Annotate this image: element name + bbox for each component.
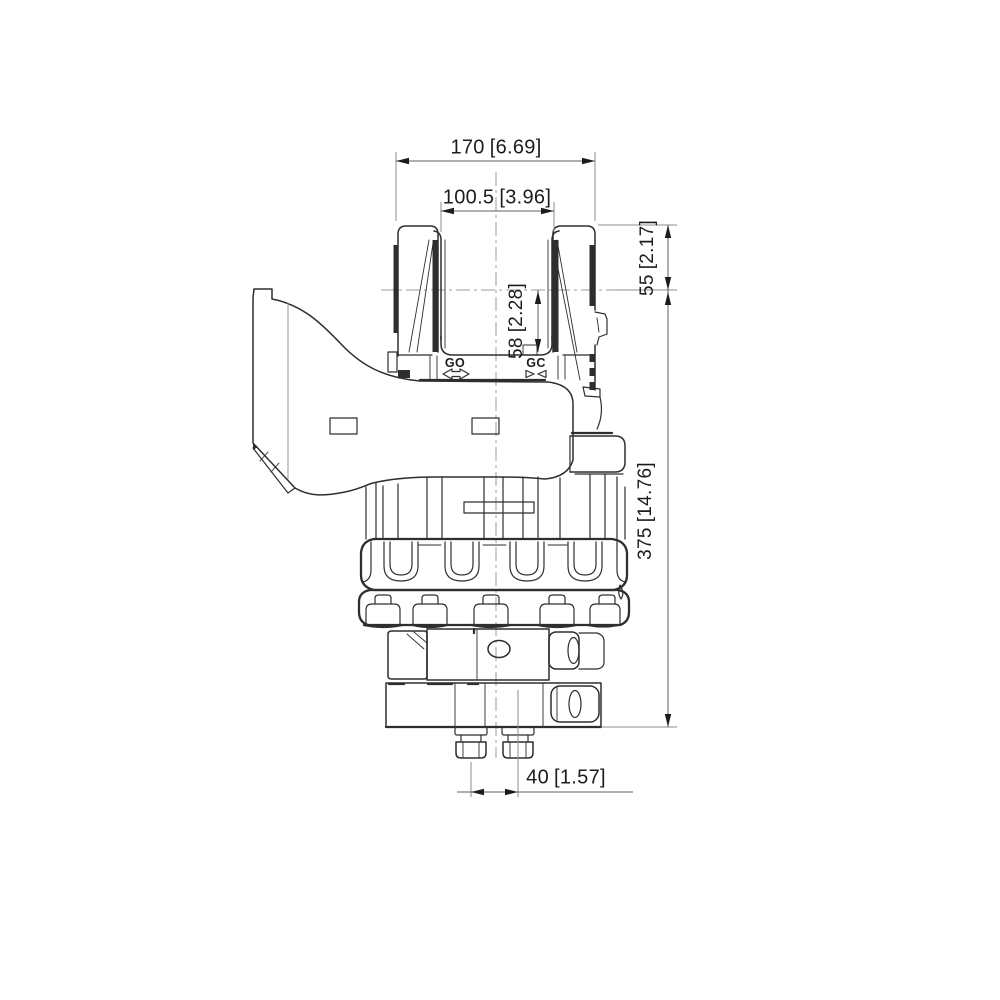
dim-overall-width-in: [6.69] [490,137,542,159]
stud-left [455,727,487,758]
dim-overall-height-mm: 375 [635,527,656,560]
dim-overall-height [665,290,671,727]
dim-slot-depth-in: [2.28] [506,283,527,332]
dim-overall-height-in: [14.76] [635,462,656,522]
side-block-right [570,433,625,472]
dim-slot-depth-mm: 58 [506,337,527,359]
dim-top-height [665,225,671,290]
grapple-close-port-label: GC [526,356,546,370]
fork-plate-left [388,226,438,378]
dim-top-height-mm: 55 [637,274,658,296]
grapple-open-port-label: GO [445,356,465,370]
dim-overall-width-label: 170[6.69] [450,137,541,160]
dim-slot-depth [535,290,541,352]
dim-stud-spacing [457,789,633,795]
dim-inner-width-mm: 100.5 [443,187,495,209]
dim-stud-spacing-in: [1.57] [554,767,606,789]
grapple-close-arrow-icon [526,371,546,378]
dim-top-height-label: 55[2.17] [637,220,659,296]
grapple-open-arrow-icon [443,369,469,379]
dim-stud-spacing-mm: 40 [526,767,549,789]
fork-plate-right [553,226,607,429]
dim-overall-height-label: 375[14.76] [635,462,657,560]
dim-inner-width-label: 100.5[3.96] [443,187,551,210]
dim-top-height-in: [2.17] [637,220,658,269]
dim-slot-depth-label: 58[2.28] [506,283,528,359]
port-markers [443,369,546,379]
valve-block-lower [386,683,601,727]
dim-overall-width-mm: 170 [450,137,484,159]
dim-inner-width-in: [3.96] [499,187,551,209]
lower-vane-band [359,590,629,627]
centerlines [381,172,614,758]
technical-drawing-page: 170[6.69] 100.5[3.96] 55[2.17] 58[2.28] … [0,0,1000,1000]
dim-stud-spacing-label: 40[1.57] [526,767,606,790]
